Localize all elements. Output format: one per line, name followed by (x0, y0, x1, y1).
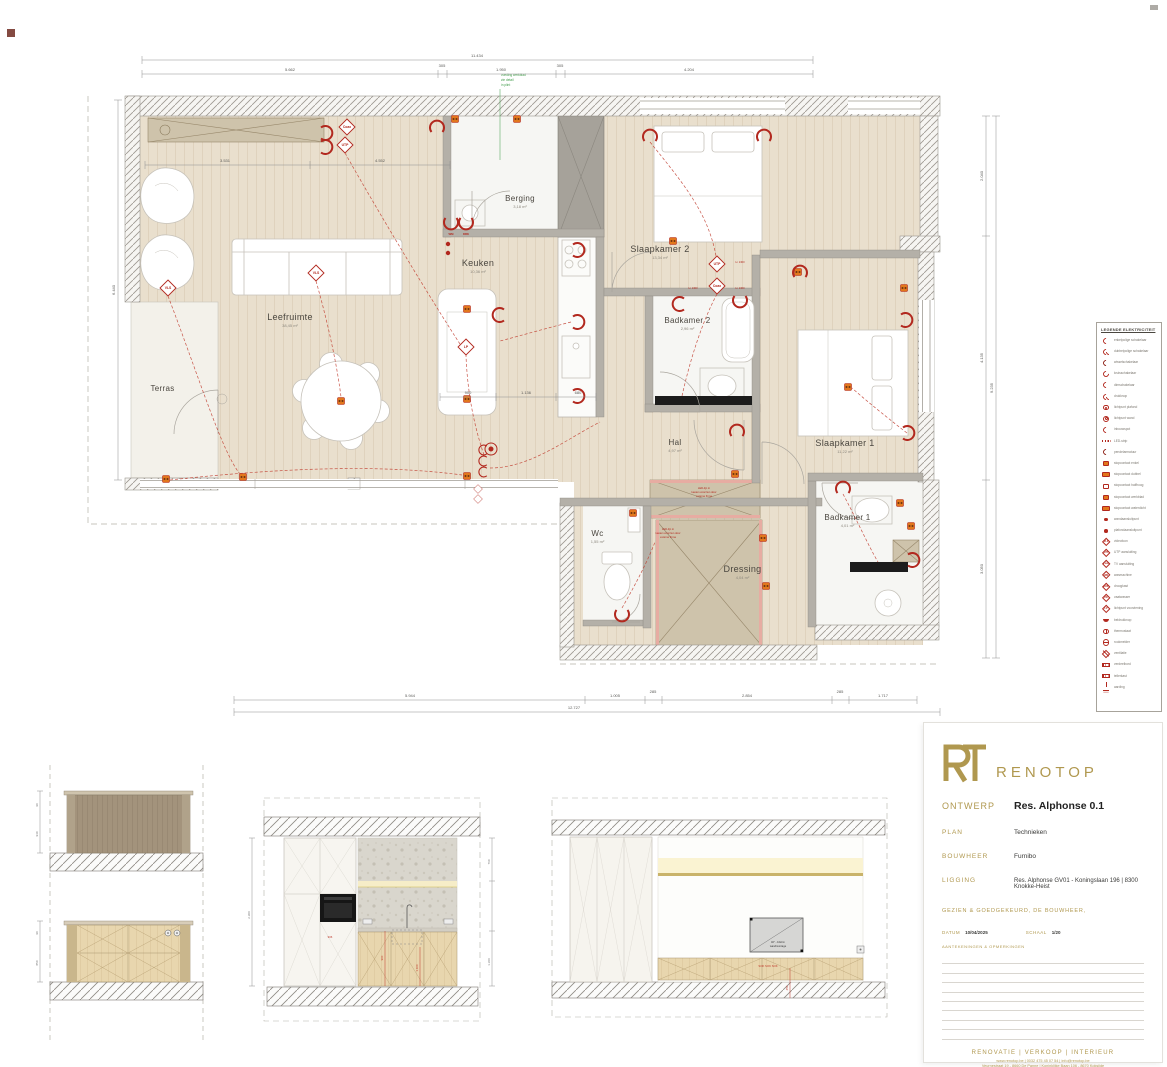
elevation-tv-wall: 40" - 102cm wandmontage SOK SOK SOK 450 (552, 798, 887, 1017)
legend-item: LP lichtpunt voorziening (1101, 604, 1158, 615)
dim: 1.005 (610, 693, 621, 698)
row-ligging: LIGGING Res. Alphonse GV01 - Koningslaan… (942, 877, 1144, 890)
bed-slaapkamer1 (798, 330, 908, 436)
legend-item-label: tellerkast (1114, 675, 1127, 678)
dim: 305 (557, 63, 564, 68)
legend-item: DRK droogkast (1101, 581, 1158, 592)
legend-item: LED-strip (1101, 436, 1158, 447)
legend-symbol-icon (1101, 526, 1111, 536)
schaal-value: 1/20 (1052, 930, 1061, 935)
lp-symbol-label: LP (464, 345, 469, 349)
legend-item-label: pendelarmatuur (1114, 451, 1136, 454)
legend-symbol-icon: WM (1101, 571, 1111, 581)
legend-symbol-icon (1101, 414, 1111, 424)
legend-symbol-icon (1101, 638, 1111, 648)
legend-item-label: dimschakelaar (1114, 384, 1135, 387)
legend-symbol-icon: VW (1101, 593, 1111, 603)
legend-item: stopcontact dubbel (1101, 469, 1158, 480)
legend-item: wandaansluitpunt (1101, 514, 1158, 525)
svg-text:externe firma: externe firma (696, 494, 712, 498)
legend-item: WM wasmachine (1101, 570, 1158, 581)
svg-text:LED-lijn in: LED-lijn in (698, 486, 711, 490)
red-dim: 900 (380, 955, 384, 960)
dim: 3.050 (979, 563, 984, 574)
legend-item-label: ventilatie (1114, 652, 1127, 655)
notes-label: AANTEKENINGEN & OPMERKINGEN (942, 944, 1144, 949)
legend-item: ventilatie (1101, 648, 1158, 659)
wm-label: WM (449, 232, 455, 236)
legend-item: dubbelpolige schakelaar (1101, 346, 1158, 357)
legend-items: enkelpolige schakelaar dubbelpolige scha… (1101, 335, 1158, 693)
legend-item: kruisschakelaar (1101, 369, 1158, 380)
shaft (558, 116, 604, 237)
legend-symbol-icon (1101, 436, 1111, 446)
renotop-monogram-icon (942, 743, 988, 783)
notes-ruled-lines (942, 955, 1144, 1040)
legend-item: stopcontact halfhoog (1101, 480, 1158, 491)
legend-symbol-icon: LP (1101, 604, 1111, 614)
legend-item-label: stopcontact waterdicht (1114, 507, 1146, 510)
legend-item: wisselschakelaar (1101, 357, 1158, 368)
legend-item-label: inbouwspot (1114, 428, 1130, 431)
dim-left: 6.440 (111, 284, 116, 295)
row-plan: PLAN Technieken (942, 829, 1144, 836)
legend-item: beldrukknop (1101, 615, 1158, 626)
legend-item-label: lichtpunt voorziening (1114, 607, 1143, 610)
dim: 285 (837, 689, 844, 694)
title-block-footer: RENOVATIE | VERKOOP | INTERIEUR www.reno… (942, 1050, 1144, 1067)
legend-item: stopcontact werkblad (1101, 492, 1158, 503)
elevation-island: 90 940 90 850 (35, 765, 203, 1040)
legend-item-label: TV aansluiting (1114, 563, 1134, 566)
corner-marks (7, 5, 1158, 37)
legend-item: VLS videofoon (1101, 536, 1158, 547)
green-note: voeding werkblad (501, 73, 526, 77)
legend-item: UTP UTP aansluiting (1101, 548, 1158, 559)
red-dim: 906 (328, 935, 333, 939)
legend-symbol-icon (1101, 615, 1111, 625)
legend-item-label: dubbelpolige schakelaar (1114, 350, 1148, 353)
legend-item-label: beldrukknop (1114, 619, 1131, 622)
meta-row: DATUM 10/04/2025 SCHAAL 1/20 (942, 930, 1144, 935)
height-note: H. 1300 (688, 286, 698, 290)
legend-symbol-icon (1101, 660, 1111, 670)
drawing-sheet: Coax UTP VLS VLS LP UTP Coax H. 1300 H. … (0, 0, 1167, 1067)
dim: 2.300 (247, 911, 251, 919)
legend-symbol-icon (1101, 481, 1111, 491)
legend-item: verdeelbord (1101, 659, 1158, 670)
legend-symbol-icon: UTP (1101, 548, 1111, 558)
height-note: H. 1300 (735, 260, 745, 264)
utp-symbol-label: UTP (714, 262, 722, 266)
legend-item: stopcontact waterdicht (1101, 503, 1158, 514)
legend-item: pendelarmatuur (1101, 447, 1158, 458)
red-dim: 450 (785, 985, 789, 990)
legend-item: enkelpolige schakelaar (1101, 335, 1158, 346)
svg-text:LED-lijn in: LED-lijn in (662, 527, 675, 531)
legend-item-label: LED-strip (1114, 440, 1127, 443)
dim: 680 (575, 390, 582, 395)
dim: 90 (35, 803, 39, 807)
contact-line: www.renotop.be | 0032 475 45 07 54 | inf… (942, 1059, 1144, 1063)
brand-name: RENOTOP (996, 764, 1098, 783)
dim: 4.204 (684, 67, 695, 72)
legend-symbol-icon (1101, 447, 1111, 457)
dim: 1.360 (487, 958, 491, 966)
legend-item-label: lichtpunt wand (1114, 417, 1134, 420)
socket-codes: SOK SOK SOK (758, 964, 777, 968)
dim: 5.662 (285, 67, 296, 72)
legend-item: aarding (1101, 682, 1158, 693)
legend-symbol-icon (1101, 403, 1111, 413)
legend-symbol-icon (1101, 682, 1111, 692)
legend-item-label: kruisschakelaar (1114, 372, 1136, 375)
legend-title: LEGENDE ELEKTRICITEIT (1101, 327, 1158, 332)
title-block: RENOTOP ONTWERP Res. Alphonse 0.1 PLAN T… (923, 722, 1163, 1063)
svg-text:externe firma: externe firma (660, 535, 676, 539)
datum-value: 10/04/2025 (965, 930, 988, 935)
dim: 850 (35, 960, 39, 965)
tv-size-label: 40" - 102cm (771, 940, 785, 944)
legend-item: inbouwspot (1101, 425, 1158, 436)
services-line: RENOVATIE | VERKOOP | INTERIEUR (942, 1050, 1144, 1056)
logo-row: RENOTOP (942, 739, 1144, 783)
dim: 305 (439, 63, 446, 68)
tv-mount-label: wandmontage (770, 944, 787, 948)
legend-item-label: thermostaat (1114, 630, 1131, 633)
legend-item-label: droogkast (1114, 585, 1128, 588)
dim: 1.717 (878, 693, 889, 698)
legend-symbol-icon: DRK (1101, 582, 1111, 592)
bed-slaapkamer2 (654, 126, 762, 242)
dim: 4.552 (375, 158, 386, 163)
legend-symbol-icon (1101, 369, 1111, 379)
legend-symbol-icon (1101, 358, 1111, 368)
dim-top-total: 11.434 (471, 53, 484, 58)
legend-symbol-icon (1101, 459, 1111, 469)
red-dim: 1.100 (415, 964, 419, 971)
dim: 940 (35, 831, 39, 836)
legend-item-label: rookmelder (1114, 641, 1130, 644)
legend-item-label: stopcontact enkel (1114, 462, 1139, 465)
legend-symbol-icon: Coax (1101, 559, 1111, 569)
height-note: H. 1300 (735, 286, 745, 290)
drk-label: DRK (463, 232, 469, 236)
legend-item: VW vaatwasser (1101, 592, 1158, 603)
green-note: zie detail (501, 78, 514, 82)
row-bouwheer: BOUWHEER Furnibo (942, 853, 1144, 860)
dim: 900 (465, 390, 472, 395)
dim-right-total: 9.235 (989, 382, 994, 393)
legend-item: tellerkast (1101, 671, 1158, 682)
legend-item-label: aarding (1114, 686, 1125, 689)
dim: 2.854 (742, 693, 753, 698)
legend-symbol-icon: VLS (1101, 537, 1111, 547)
legend-item: rookmelder (1101, 637, 1158, 648)
legend-item-label: lichtpunt plafond (1114, 406, 1137, 409)
approval-line: GEZIEN & GOEDGEKEURD, DE BOUWHEER, (942, 908, 1144, 914)
legend-symbol-icon (1101, 380, 1111, 390)
dim: 90 (35, 931, 39, 935)
legend-item-label: drukknop (1114, 395, 1127, 398)
vls-symbol-label: VLS (165, 286, 172, 290)
legend-item-label: vaatwasser (1114, 596, 1130, 599)
legend-symbol-icon (1101, 425, 1111, 435)
dim: 2.040 (979, 170, 984, 181)
coax-symbol-label: Coax (343, 125, 351, 129)
legend-item-label: UTP aansluiting (1114, 551, 1136, 554)
legend-item-label: plafondaansluitpunt (1114, 529, 1142, 532)
legend-item-label: stopcontact werkblad (1114, 496, 1144, 499)
row-ontwerp: ONTWERP Res. Alphonse 0.1 (942, 800, 1144, 812)
legend-item-label: wasmachine (1114, 574, 1132, 577)
legend-item: thermostaat (1101, 626, 1158, 637)
legend-item: lichtpunt plafond (1101, 402, 1158, 413)
dim: 3.531 (220, 158, 231, 163)
legend-item-label: verdeelbord (1114, 663, 1131, 666)
legend-symbol-icon (1101, 492, 1111, 502)
legend-item: lichtpunt wand (1101, 413, 1158, 424)
legend-symbol-icon (1101, 503, 1111, 513)
legend-elektriciteit: LEGENDE ELEKTRICITEIT enkelpolige schake… (1096, 322, 1162, 712)
dim-bottom-total: 12.727 (568, 705, 581, 710)
vls-symbol-label: VLS (313, 271, 320, 275)
dim: 1.136 (521, 390, 532, 395)
dim: 4.135 (979, 352, 984, 363)
legend-symbol-icon (1101, 392, 1111, 402)
legend-item: dimschakelaar (1101, 380, 1158, 391)
legend-symbol-icon (1101, 470, 1111, 480)
legend-item: Coax TV aansluiting (1101, 559, 1158, 570)
legend-symbol-icon (1101, 347, 1111, 357)
legend-item-label: wisselschakelaar (1114, 361, 1138, 364)
legend-item: plafondaansluitpunt (1101, 525, 1158, 536)
legend-item: drukknop (1101, 391, 1158, 402)
legend-item: stopcontact enkel (1101, 458, 1158, 469)
legend-symbol-icon (1101, 649, 1111, 659)
legend-item-label: stopcontact dubbel (1114, 473, 1141, 476)
dim: 760 (487, 859, 491, 864)
legend-symbol-icon (1101, 626, 1111, 636)
svg-text:kasten voorzien door: kasten voorzien door (656, 531, 681, 535)
legend-symbol-icon (1101, 671, 1111, 681)
green-note: in plint (501, 83, 510, 87)
svg-text:kasten voorzien door: kasten voorzien door (692, 490, 717, 494)
legend-symbol-icon (1101, 515, 1111, 525)
legend-item-label: wandaansluitpunt (1114, 518, 1139, 521)
dim: 5.944 (405, 693, 416, 698)
dim: 285 (650, 689, 657, 694)
legend-symbol-icon (1101, 336, 1111, 346)
utp-symbol-label: UTP (342, 143, 350, 147)
coax-symbol-label: Coax (713, 284, 721, 288)
dim: 1.950 (496, 67, 507, 72)
elevation-kitchen: 900 1.100 906 2.300 760 1.360 (247, 798, 495, 1021)
legend-item-label: enkelpolige schakelaar (1114, 339, 1146, 342)
legend-item-label: videofoon (1114, 540, 1128, 543)
legend-item-label: stopcontact halfhoog (1114, 484, 1143, 487)
